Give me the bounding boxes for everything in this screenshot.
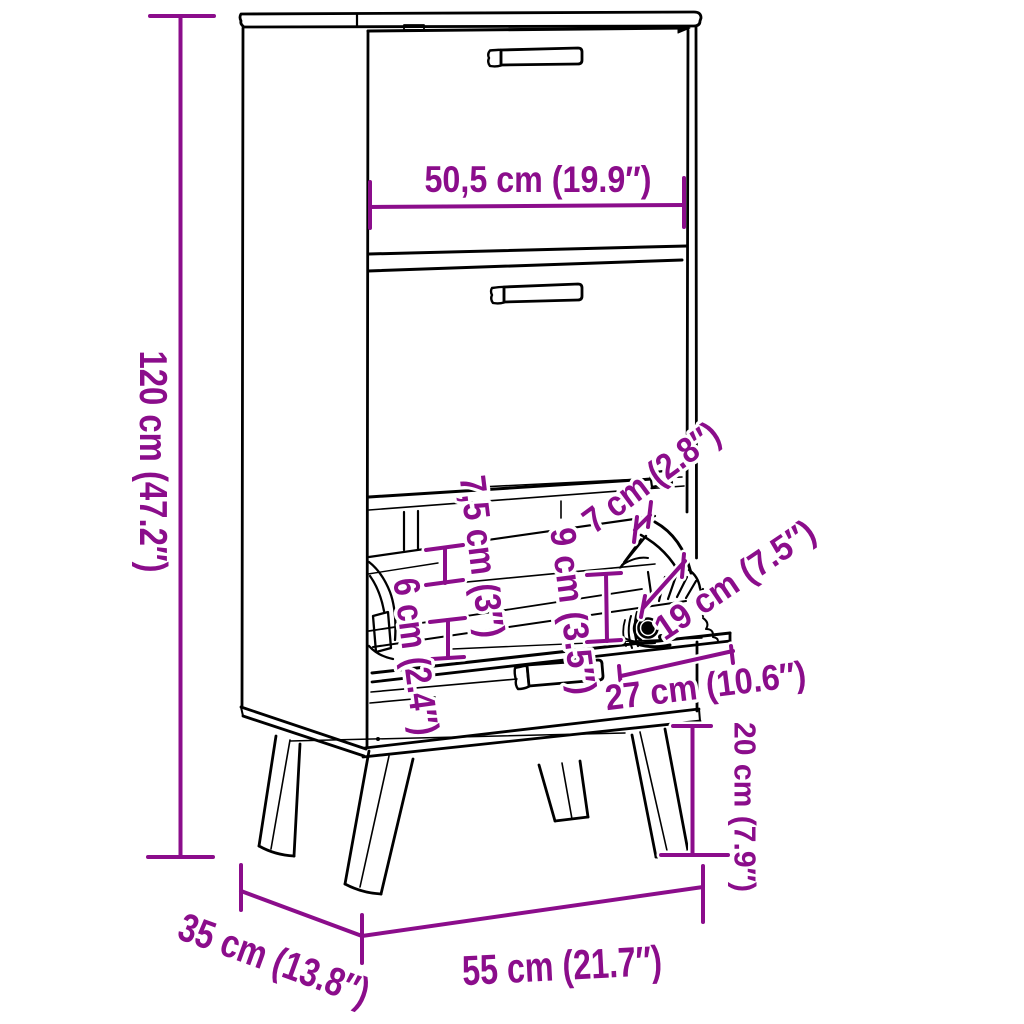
svg-text:50,5 cm (19.9″): 50,5 cm (19.9″) [425,159,652,200]
svg-text:120 cm (47.2″): 120 cm (47.2″) [131,351,174,573]
svg-text:20 cm (7.9″): 20 cm (7.9″) [728,722,763,892]
